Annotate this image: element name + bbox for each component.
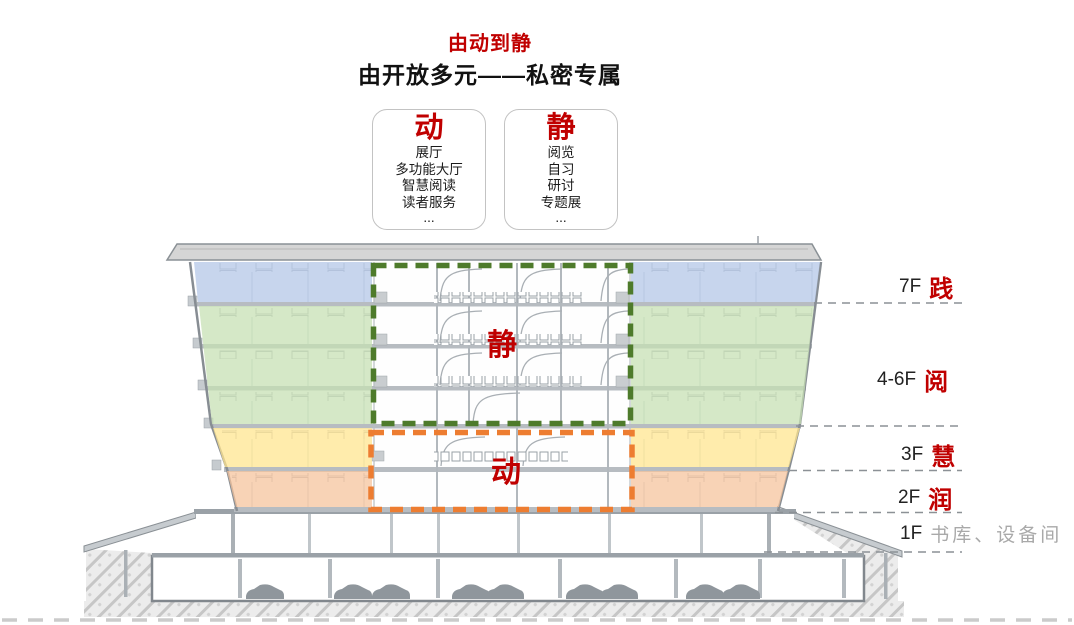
roof-slab — [167, 244, 821, 260]
basement-parking — [152, 556, 864, 601]
floor-label-2f: 2F 润 — [898, 480, 954, 515]
legend-item: 多功能大厅 — [373, 162, 485, 179]
legend-box-jing: 静 阅览 自习 研讨 专题展 ... — [504, 109, 618, 230]
slide-canvas: 由动到静 由开放多元——私密专属 动 展厅 多功能大厅 智慧阅读 读者服务 ..… — [0, 0, 1074, 625]
first-floor-structure — [152, 509, 864, 558]
legend-item: 展厅 — [373, 145, 485, 162]
floor-number: 3F — [901, 444, 923, 466]
floor-label-3f: 3F 慧 — [901, 437, 957, 472]
floor-number: 4-6F — [877, 369, 916, 391]
floor-name: 阅 — [924, 362, 950, 397]
page-title: 由动到静 — [140, 27, 840, 56]
floor-name: 书库、设备间 — [930, 520, 1062, 547]
zone-orange-left — [227, 471, 372, 507]
legend-item: 读者服务 — [373, 195, 485, 212]
floor-number: 1F — [900, 523, 922, 545]
zone-yellow-left — [213, 428, 372, 467]
floor-name: 践 — [929, 269, 955, 304]
zone-orange-right — [631, 471, 788, 507]
legend-item: 阅览 — [505, 145, 617, 162]
legend-box-dong-title: 动 — [373, 112, 485, 145]
legend-box-dong: 动 展厅 多功能大厅 智慧阅读 读者服务 ... — [372, 109, 486, 230]
floor-label-4-6f: 4-6F 阅 — [877, 362, 950, 397]
floor-name: 慧 — [931, 437, 957, 472]
zone-blue-right — [631, 262, 820, 302]
floor-label-7f: 7F 践 — [899, 269, 955, 304]
legend-item: 自习 — [505, 162, 617, 179]
floor-number: 2F — [898, 487, 920, 509]
floor-label-1f: 1F 书库、设备间 — [900, 520, 1062, 547]
zone-blue-left — [194, 262, 372, 302]
legend-item-ellipsis: ... — [505, 211, 617, 225]
floor-number: 7F — [899, 276, 921, 298]
legend-item: 研讨 — [505, 178, 617, 195]
zone-green-left — [199, 306, 372, 424]
page-subtitle: 由开放多元——私密专属 — [140, 56, 840, 90]
legend-item: 智慧阅读 — [373, 178, 485, 195]
legend-item-ellipsis: ... — [373, 211, 485, 225]
zone-yellow-right — [631, 428, 800, 467]
dong-zone-label: 动 — [478, 455, 534, 491]
floor-name: 润 — [928, 480, 954, 515]
jing-zone-label: 静 — [474, 328, 530, 364]
legend-box-jing-title: 静 — [505, 112, 617, 145]
legend-item: 专题展 — [505, 195, 617, 212]
zone-green-right — [631, 306, 814, 424]
